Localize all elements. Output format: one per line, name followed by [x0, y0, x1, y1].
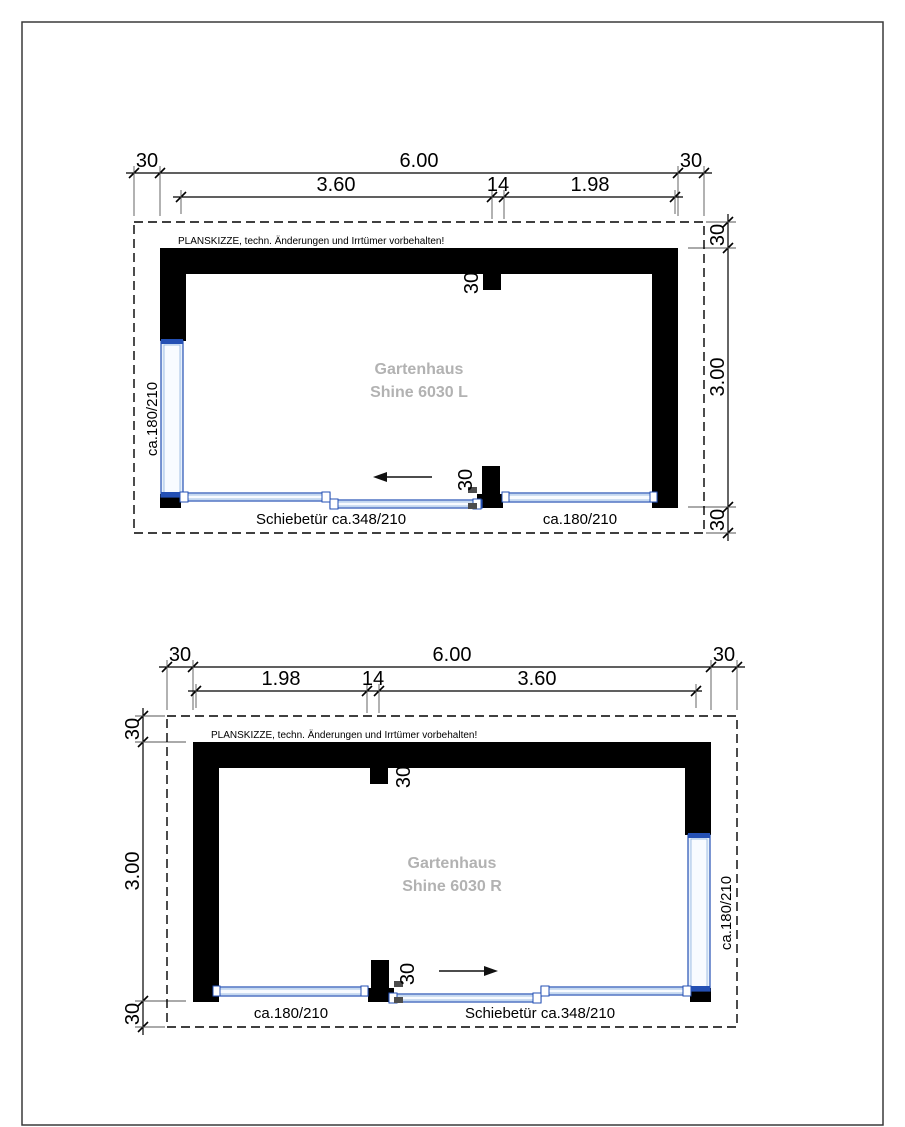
dimension-side-left: 30 3.00 30 — [122, 708, 186, 1035]
dim-door-width: 3.60 — [317, 174, 356, 196]
sliding-door-label: Schiebetür ca.348/210 — [256, 511, 406, 528]
corner-post-bottom-left — [193, 988, 214, 1002]
window-side-label: ca.180/210 — [144, 382, 161, 456]
plan-title-line2: Shine 6030 R — [402, 878, 502, 895]
dim-right-overhang: 30 — [713, 644, 735, 666]
sliding-door-label: Schiebetür ca.348/210 — [465, 1005, 615, 1022]
slide-direction-arrowhead — [484, 966, 498, 976]
door-stop-lower — [468, 503, 477, 509]
dim-left-overhang: 30 — [136, 150, 158, 172]
wall-right — [652, 248, 678, 508]
sliding-door — [389, 966, 691, 1003]
wall-left — [193, 742, 219, 1002]
window-bottom-left — [213, 986, 368, 996]
window-bottom-label: ca.180/210 — [254, 1005, 328, 1022]
wall-top — [193, 742, 711, 768]
sliding-door — [180, 472, 482, 509]
dim-left-overhang: 30 — [169, 644, 191, 666]
window-bottom-right — [502, 492, 657, 502]
corner-post-bottom-right — [657, 494, 678, 508]
walls — [193, 742, 711, 1002]
disclaimer-text: PLANSKIZZE, techn. Änderungen und Irrtüm… — [211, 729, 477, 741]
window-left — [161, 339, 183, 497]
door-stop-lower — [394, 997, 403, 1003]
floor-plan-shine-6030-r: 30 6.00 30 1.98 14 3.60 — [122, 644, 745, 1035]
page-border — [22, 22, 883, 1125]
door-post-stub — [371, 960, 389, 988]
stub-bottom-label: 30 — [397, 963, 419, 985]
dim-window-width: 1.98 — [571, 174, 610, 196]
dimension-side-right: 30 3.00 30 — [688, 214, 736, 541]
door-post-stub — [482, 466, 500, 494]
wall-stub-top — [483, 274, 501, 290]
dimension-row-total-top: 30 6.00 30 — [126, 150, 712, 216]
disclaimer-text: PLANSKIZZE, techn. Änderungen und Irrtüm… — [178, 235, 444, 247]
slide-direction-arrowhead — [373, 472, 387, 482]
dimension-row-total-bottom: 30 6.00 30 — [159, 644, 745, 710]
window-right — [688, 833, 710, 991]
dimension-row-openings-top: 3.60 14 1.98 — [173, 174, 683, 219]
plan-sketch-canvas: 30 6.00 30 3.60 14 1.98 — [0, 0, 905, 1127]
window-bottom-label: ca.180/210 — [543, 511, 617, 528]
drawing-page: 30 6.00 30 3.60 14 1.98 — [0, 0, 905, 1127]
stub-top-label: 30 — [393, 766, 415, 788]
dim-right-overhang: 30 — [680, 150, 702, 172]
wall-top — [160, 248, 678, 274]
wall-left-upper — [160, 248, 186, 341]
dim-side-depth: 3.00 — [122, 852, 144, 891]
window-side-label: ca.180/210 — [718, 876, 735, 950]
dim-post-width: 14 — [487, 174, 509, 196]
stub-bottom-label: 30 — [455, 469, 477, 491]
dim-side-top-overhang: 30 — [122, 718, 144, 740]
dim-side-top-overhang: 30 — [707, 224, 729, 246]
walls — [160, 248, 678, 508]
dim-window-width: 1.98 — [262, 668, 301, 690]
plan-title-line1: Gartenhaus — [408, 855, 497, 872]
dim-side-bottom-overhang: 30 — [707, 509, 729, 531]
floor-plan-shine-6030-l: 30 6.00 30 3.60 14 1.98 — [126, 150, 736, 541]
dim-side-bottom-overhang: 30 — [122, 1003, 144, 1025]
plan-title-line2: Shine 6030 L — [370, 384, 468, 401]
dimension-row-openings-bottom: 1.98 14 3.60 — [188, 668, 702, 713]
dim-post-width: 14 — [362, 668, 384, 690]
dim-total-width: 6.00 — [433, 644, 472, 666]
wall-right-upper — [685, 742, 711, 835]
plan-title-line1: Gartenhaus — [375, 361, 464, 378]
dim-door-width: 3.60 — [518, 668, 557, 690]
dim-total-width: 6.00 — [400, 150, 439, 172]
stub-top-label: 30 — [461, 272, 483, 294]
wall-stub-top — [370, 768, 388, 784]
dim-side-depth: 3.00 — [707, 358, 729, 397]
